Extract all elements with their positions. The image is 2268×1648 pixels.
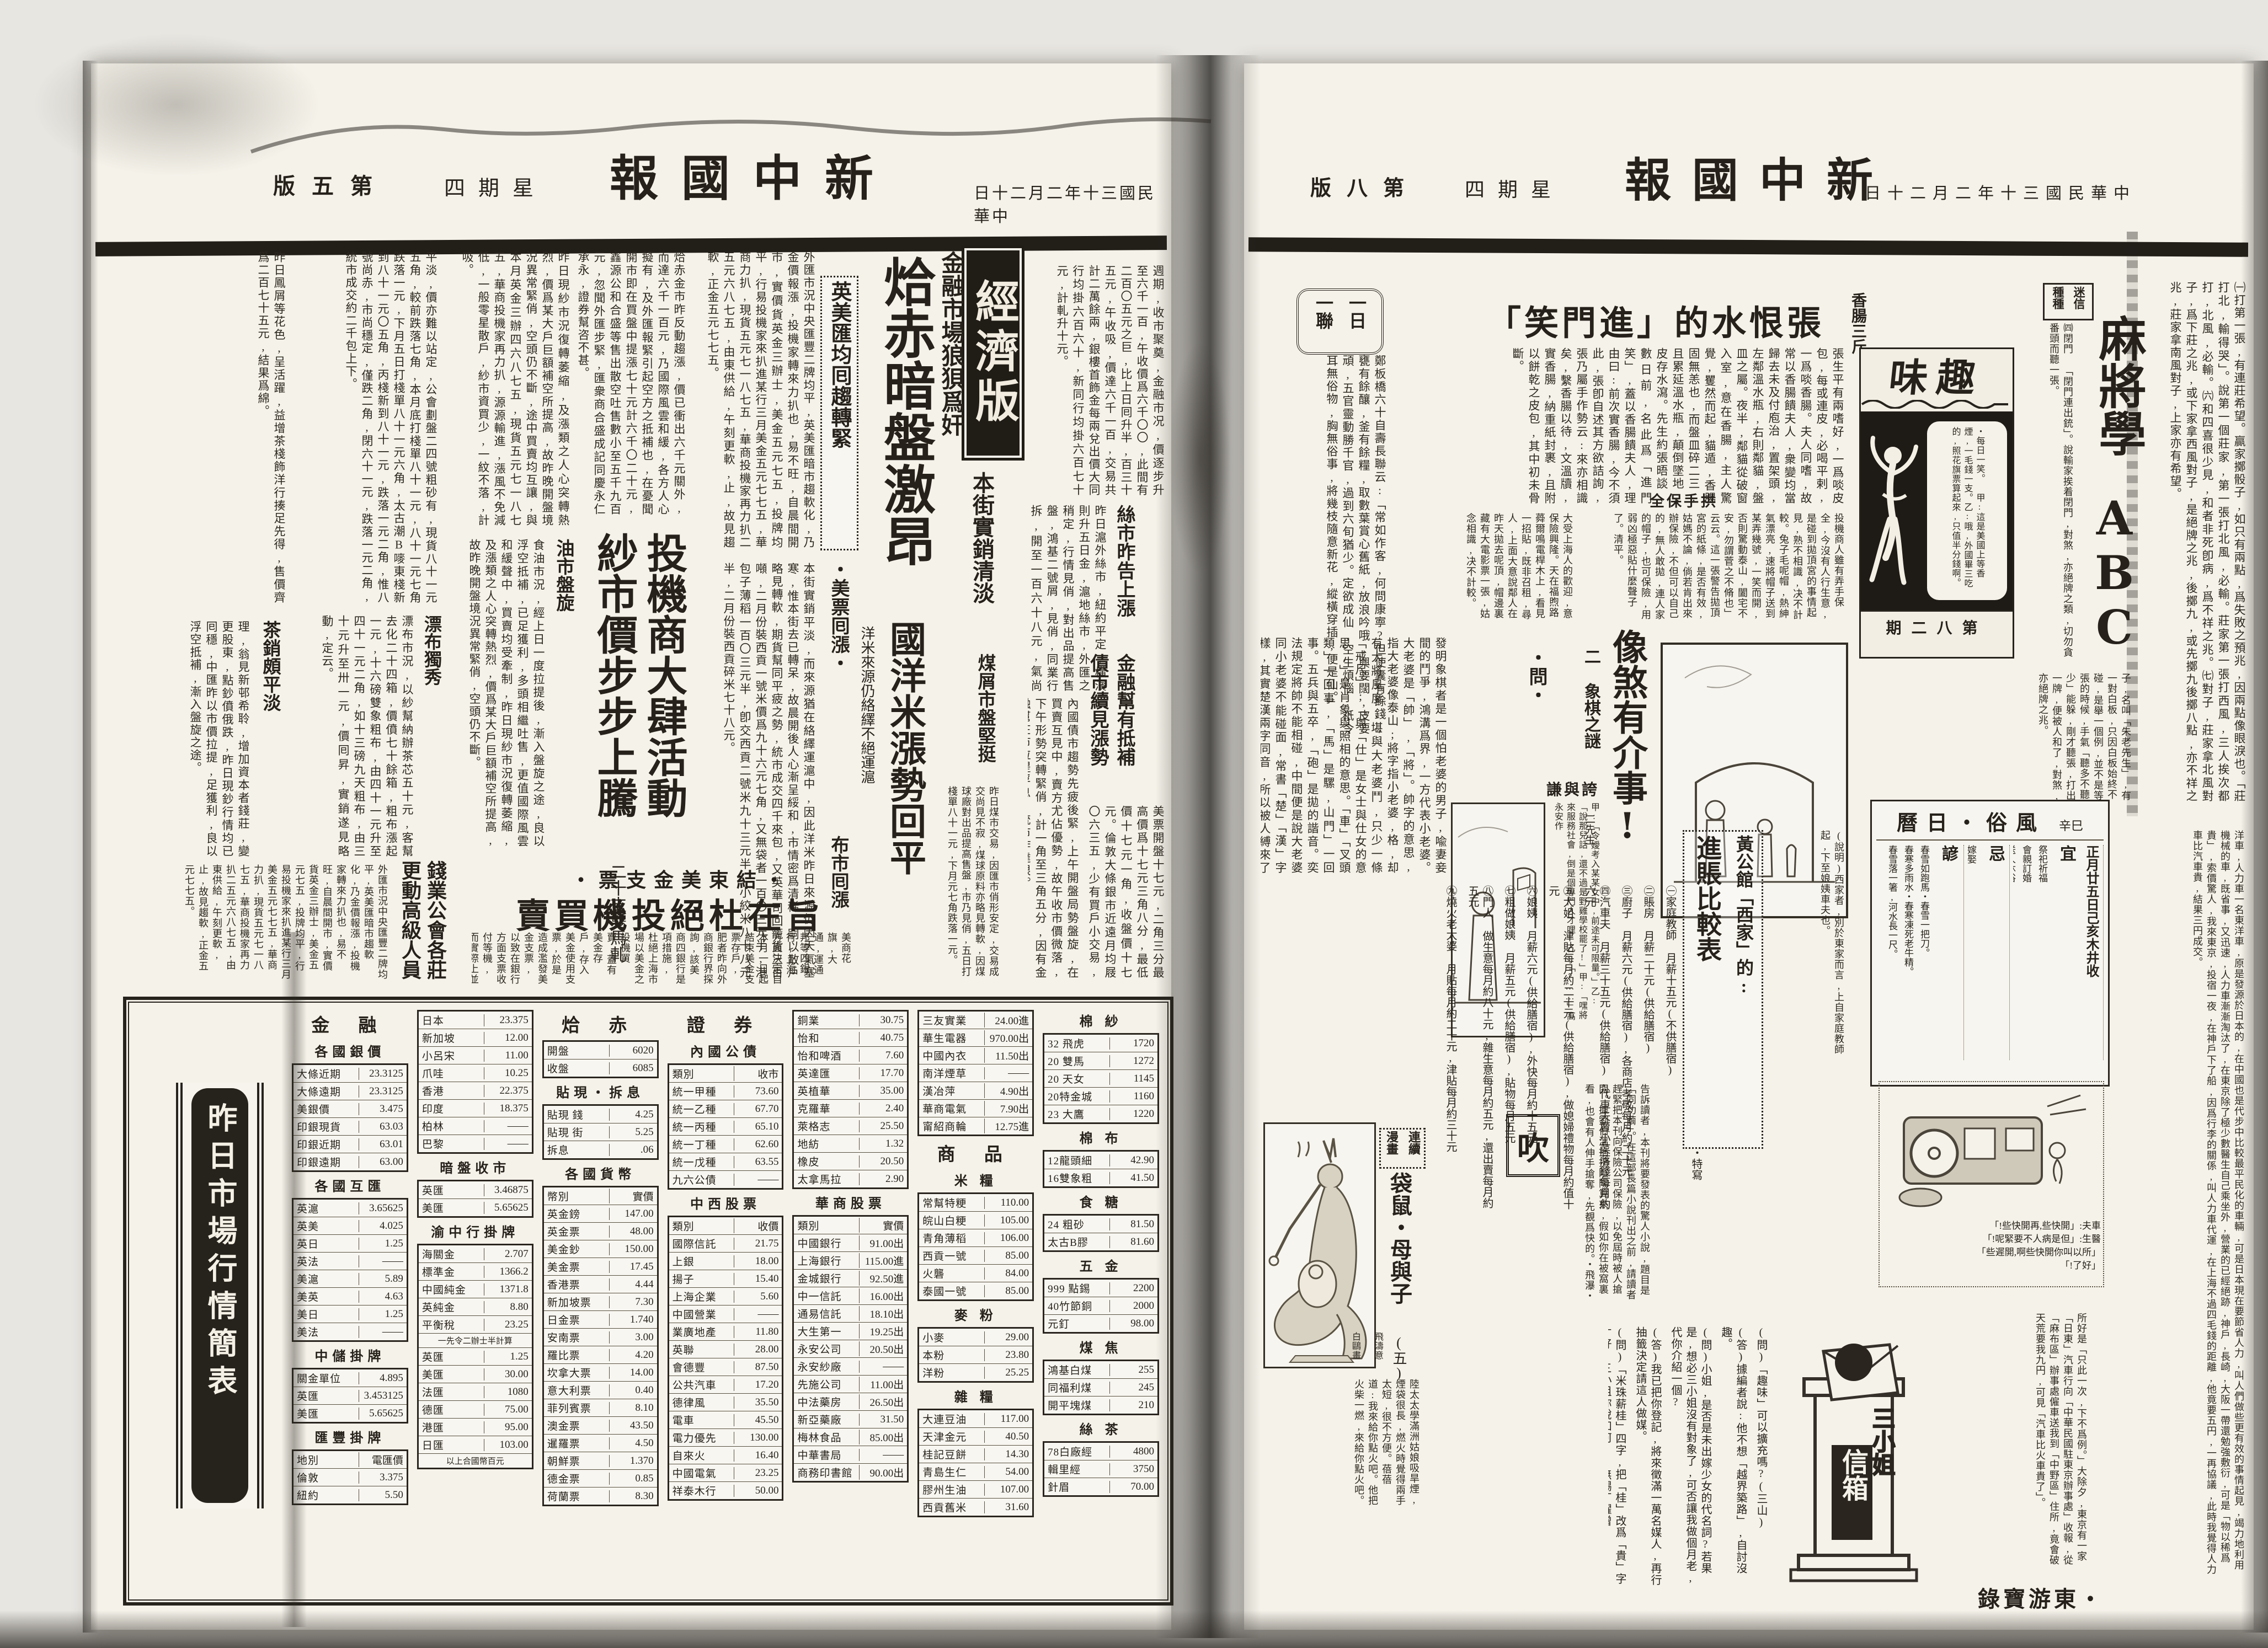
market-row: 澳金票43.50 [544, 1416, 657, 1434]
gold-body: 烚赤金市昨反動趨漲,價已衝出六千元關外,而達六千一百元,乃國際風雲和緩,各方人心… [577, 251, 687, 516]
market-row: 太拿馬拉2.90 [794, 1170, 907, 1187]
market-row: 美金票17.45 [544, 1258, 657, 1275]
market-row-label: 坎拿大票 [547, 1365, 591, 1380]
market-row-value: 3750 [1109, 1463, 1154, 1475]
market-row-value: 2000 [1109, 1300, 1154, 1312]
almanac-yi-item: 祭祀祈福 [2036, 845, 2048, 1060]
market-row-value: 實價 [859, 1218, 904, 1233]
market-row-label: 電車 [673, 1412, 695, 1427]
mahjong-body-left: ㈣閉門 「閉門連出銃」。說輸家挨着閉門,對煞,亦絕牌之類,切勿貪番頭而聽一張。 [2014, 323, 2074, 665]
market-row-value: 11.00 [484, 1050, 529, 1062]
market-row: 以上合國幣百元 [419, 1453, 532, 1468]
market-row-value: 1.25 [484, 1351, 529, 1363]
east-travel-strip: 洋車,人力車一名東洋車,原是發源於日本的,在中國也是代步中比較最平民化的車輛,可… [2102, 830, 2245, 1575]
market-row: 大生第一19.25出 [794, 1322, 907, 1340]
chui-title-box: 吹 [1506, 1114, 1560, 1177]
market-row-value: 45.50 [734, 1414, 778, 1426]
market-row-value: 5.89 [359, 1273, 403, 1285]
market-row: 中國純金1371.8 [419, 1280, 532, 1298]
market-row-label: 元釘 [1048, 1316, 1070, 1331]
ambulance-caption-line: 「!呢緊要不人病是但」:生醫 [1882, 1233, 2101, 1246]
market-row-value: 98.00 [1109, 1318, 1154, 1330]
market-row-value: 115.00進 [859, 1253, 904, 1268]
rice-headline: 國洋米漲勢回平 [879, 620, 932, 929]
market-row-value: 7.60 [859, 1050, 904, 1062]
market-section-header: 商 品 [917, 1139, 1034, 1167]
market-row-value: 92.50進 [859, 1271, 904, 1286]
market-row: 印銀現貨63.03 [293, 1117, 407, 1135]
market-row: 新加坡12.00 [419, 1029, 532, 1046]
market-row: 羅比票4.20 [544, 1346, 657, 1363]
market-row-label: 法匯 [422, 1384, 444, 1399]
market-row-value: 11.50出 [984, 1048, 1029, 1063]
market-section-header: 內國公債 [668, 1040, 784, 1061]
market-row-label: 火礱 [922, 1266, 944, 1281]
right-page: 版八第 四期星 報國中新 日十二月二年十三國民華中 「笑門進」的水恨張 香腸三斤… [1244, 63, 2254, 1630]
market-row: 拆息.06 [544, 1141, 657, 1158]
subhead-oil: 油市盤旋 [550, 539, 577, 649]
market-row-value: 5.25 [609, 1126, 654, 1138]
market-row: 泰國一號85.00 [919, 1282, 1032, 1299]
market-row-value: 5.60 [734, 1291, 778, 1303]
market-row: 英匯1.25 [419, 1347, 532, 1365]
market-row-value: 23.3125 [359, 1068, 403, 1080]
almanac-box: 曆日・俗風 辛巳 正月廿五日己亥木井收 宜 祭祀祈福會親訂婚送人沐浴醒慶開市立易… [1870, 800, 2110, 1087]
market-row: 美滬5.89 [293, 1270, 407, 1287]
market-row: 類別收價 [669, 1217, 782, 1234]
market-row-label: 西貢舊米 [922, 1500, 967, 1515]
market-row: 貼現 錢4.25 [544, 1106, 657, 1123]
market-row-label: 克羅華 [797, 1101, 830, 1116]
market-row-value: 43.50 [609, 1420, 654, 1432]
market-row: 美金鈔150.00 [544, 1240, 657, 1258]
market-row: 統一丁種62.60 [669, 1135, 782, 1153]
market-row-value: 24.00進 [984, 1013, 1029, 1028]
market-row-value: 23.25 [734, 1467, 778, 1479]
market-row: 中國內衣11.50出 [919, 1046, 1032, 1064]
market-row-label: 甯紹商輪 [922, 1119, 967, 1133]
couplet-title-box: 一聯 一日 [1296, 288, 1384, 355]
almanac-proverb-item: 春雪如跑馬・春雪一把刀。 [1918, 845, 1930, 1060]
market-row-value: 91.00出 [859, 1235, 904, 1250]
market-row: 24 粗砂81.50 [1044, 1216, 1157, 1233]
market-section-table: 大連豆油117.00天津金元40.50桂記豆餅14.30青島生仁54.00膠州生… [917, 1409, 1034, 1517]
market-row-value: 15.40 [734, 1273, 778, 1285]
qa-entry: (答)我已把你登記,將來徵滿一萬名媒人,再行抽籤決定請這人做媒。 [1632, 1326, 1662, 1591]
market-row-value: —— [859, 1449, 904, 1461]
market-row: 梅林食品85.00出 [794, 1428, 907, 1446]
market-section-table: 英匯3.46875美匯5.65625 [417, 1180, 533, 1218]
market-row-label: 開平塊煤 [1048, 1398, 1092, 1412]
bank-headline-1: 錢業公會各莊 [421, 860, 450, 982]
market-row-label: 40竹節銅 [1048, 1298, 1092, 1313]
market-section-header: 米 糧 [917, 1169, 1034, 1190]
market-row-value: 21.75 [734, 1238, 778, 1250]
market-row-label: 德匯 [422, 1402, 444, 1417]
market-row: 怡和40.75 [794, 1029, 907, 1046]
market-row-label: 太古B膠 [1048, 1234, 1088, 1249]
market-row-label: 日本 [422, 1013, 444, 1028]
market-row-value: 23.375 [484, 1014, 529, 1026]
market-row-label: 華商電氣 [922, 1101, 967, 1116]
market-row-value: 70.00 [1109, 1481, 1154, 1493]
market-row-value: 1.25 [359, 1238, 403, 1250]
lead-headline: 烚赤暗盤激昂 [868, 255, 943, 608]
market-row-value: 41.50 [1109, 1172, 1154, 1184]
subhead-coal: 煤屑市盤堅挺 [972, 654, 998, 780]
ambulance-caption-line: 「!了好」 [1882, 1259, 2101, 1272]
market-row-value: 6085 [609, 1062, 654, 1074]
market-row: 999 點錫2200 [1044, 1280, 1157, 1297]
market-row: 西貢舊米31.60 [919, 1498, 1032, 1516]
market-row: 業廣地產11.80 [669, 1323, 782, 1340]
market-row: 美法—— [293, 1323, 407, 1340]
market-section-table: 小麥29.00本粉23.80洋粉25.25 [917, 1327, 1034, 1383]
market-row-label: 業廣地產 [673, 1324, 717, 1339]
coal-body: 昨日煤市交易,因匯市俏形安定,交易成交尚見不寂,煤球原料亦略見轉軟,因煤球廠對出… [935, 786, 1000, 979]
market-row-value: 收市 [734, 1066, 778, 1081]
market-row-value: 1272 [1109, 1055, 1154, 1067]
market-row-value: 103.00 [484, 1439, 529, 1451]
market-row-value: 19.25出 [859, 1324, 904, 1339]
market-row: 日本23.375 [419, 1012, 532, 1029]
left-date: 日十二月二年十三國民華中 [974, 180, 1171, 227]
market-row-value: 1720 [1109, 1037, 1154, 1050]
market-row: 中國電氣23.25 [669, 1464, 782, 1481]
market-row: 本粉23.80 [919, 1346, 1032, 1363]
market-row-value: 20.50出 [859, 1341, 904, 1356]
market-row-value: 16.40 [734, 1449, 778, 1462]
subhead-jin1: 金融幫有抵補 [1111, 654, 1138, 791]
market-row: 會德豐87.50 [669, 1358, 782, 1376]
market-row-value: 14.00 [609, 1367, 654, 1379]
market-section-header: 華商股票 [792, 1192, 909, 1212]
market-row-label: 收盤 [547, 1061, 569, 1076]
ambulance-caption-line: 「!些快開再,些快開」:夫車 [1882, 1219, 2101, 1233]
market-row-value: 75.00 [484, 1404, 529, 1416]
market-row: 萊格志25.50 [794, 1117, 907, 1135]
market-row-value: 90.00出 [859, 1465, 904, 1480]
market-row-value: 3.375 [359, 1472, 403, 1484]
market-row-label: 德金票 [547, 1471, 580, 1486]
market-row-value: 28.00 [734, 1344, 778, 1356]
subhead-usnote: ・美票囘漲・ [825, 560, 852, 687]
market-row-label: 爪哇 [422, 1066, 444, 1080]
bottom-scan-shadow [0, 1610, 2268, 1648]
market-section-header: 證 券 [668, 1010, 784, 1037]
market-row-label: 美金鈔 [547, 1242, 580, 1256]
market-row-value: 20.50 [859, 1155, 904, 1168]
market-row: 通易信託18.10出 [794, 1304, 907, 1322]
market-row-value: 收價 [734, 1218, 778, 1233]
market-row: 常幫特粳110.00 [919, 1194, 1032, 1211]
market-row-value: 50.00 [734, 1485, 778, 1497]
subhead-bleach: 漂布獨秀 [419, 615, 445, 714]
market-row-value: 210 [1109, 1399, 1154, 1411]
subhead-silk: 絲市昨告上漲 [1111, 505, 1138, 637]
market-row-value: 63.55 [734, 1156, 778, 1168]
market-row-value: 40.75 [859, 1032, 904, 1044]
market-row-value: 81.60 [1109, 1236, 1154, 1248]
tea-body: 理,翁見新邨希聆,增加資本者錢莊,變更股東,點鈔僨俄跌,昨日現鈔行情均已囘穩,中… [102, 620, 251, 858]
market-row-label: 開盤 [547, 1043, 569, 1058]
market-row-value: —— [859, 1361, 904, 1373]
market-section-table: 關金單位4.895英匯3.453125美匯5.65625 [292, 1368, 408, 1424]
market-row-value: 30.00 [484, 1368, 529, 1381]
market-row-label: 同福利煤 [1048, 1380, 1092, 1395]
market-col-commodities: 三友實業24.00進華生電器970.00出中國內衣11.50出南洋煙草——漢冶萍… [917, 1010, 1034, 1583]
huang-income-item: ㊈燒火老太婆 月貼每月約二十元,津貼每月約三十元 [1443, 885, 1458, 1216]
mahjong-body-right: ㈠打第一張,有連莊希望。贏家擲骰子,如只有兩點,爲失敗之預兆,因兩點像眼淚也。「… [2137, 281, 2247, 802]
top-curl-line [248, 88, 1214, 160]
market-section-header: 棉 布 [1043, 1127, 1159, 1147]
market-row-label: 美匯 [422, 1200, 444, 1215]
market-row: 洋粉25.25 [919, 1363, 1032, 1381]
market-row-value: 4.20 [609, 1349, 654, 1361]
ambulance-illustration [1882, 1084, 2094, 1217]
market-row-value: 255 [1109, 1364, 1154, 1376]
market-row: 朝鮮票1.370 [544, 1452, 657, 1469]
market-row-label: 類別 [673, 1066, 695, 1081]
market-row-value: 110.00 [984, 1197, 1029, 1209]
market-section-table: 海關金2.707標準金1366.2中國純金1371.8英純金8.80平衡稅23.… [417, 1244, 533, 1469]
market-row-label: 會德豐 [673, 1360, 706, 1374]
almanac-ji-group: 忌 嫁娶破券安葬 [1963, 845, 2010, 1060]
market-row-value: 2200 [1109, 1282, 1154, 1294]
market-row-label: 上海銀行 [797, 1253, 841, 1268]
market-row-value: 1145 [1109, 1073, 1154, 1085]
market-row-label: 16雙象粗 [1048, 1170, 1092, 1185]
market-row-label: 中一信託 [797, 1288, 841, 1303]
market-row: 先施公司11.00出 [794, 1375, 907, 1393]
almanac-yan-group: 諺 春雪如跑馬・春雪一把刀。春寒多雨水・春寒凍死老牛精。春雪落一箸,河水長一尺。 [1877, 845, 1960, 1060]
market-row: 美匯5.65625 [293, 1404, 407, 1422]
market-row: 三友實業24.00進 [919, 1012, 1032, 1029]
market-row-label: 23 大鷹 [1048, 1106, 1085, 1121]
lead-subheadline: 英美匯均囘趨轉緊 [820, 276, 858, 550]
market-row-label: 柏林 [422, 1119, 444, 1133]
market-section-header: 中西股票 [668, 1192, 784, 1213]
subhead-tea: 茶銷頗平淡 [257, 620, 283, 731]
right-header-rule [1248, 237, 2248, 256]
market-row-label: 鴻基白煤 [1048, 1362, 1092, 1377]
subhead-jin2: 債市續見漲勢 [1084, 654, 1111, 791]
quwei-slogan: ・每日一笑。 [1975, 427, 1984, 483]
almanac-yi-item: 送人沐浴 [2013, 845, 2016, 1060]
market-section-table: 類別收市統一甲種73.60統一乙種67.70統一丙種65.10統一丁種62.60… [668, 1063, 784, 1190]
right-masthead: 報國中新 [1625, 143, 1894, 210]
market-row-label: 日匯 [422, 1437, 444, 1452]
huang-income-item: ㊇門人 做生意每月約八十元,雜生意每月約五元,還出賣每月約五元 [1465, 885, 1494, 1216]
market-row: 同福利煤245 [1044, 1378, 1157, 1396]
market-col-cotton: 棉 紗32 飛虎172020 雙馬127220 天女114520特金城11602… [1043, 1010, 1159, 1583]
market-row-label: 小呂宋 [422, 1048, 455, 1063]
market-row: 香港22.375 [419, 1082, 532, 1099]
zhang-headline: 「笑門進」的水恨張 [1487, 295, 1845, 345]
market-row: 新加坡票7.30 [544, 1293, 657, 1310]
market-row-value: 26.50出 [859, 1394, 904, 1409]
bank-headline-2: 更動高級人員 [396, 860, 424, 982]
market-row-value: —— [484, 1120, 529, 1132]
market-row: 皖山白粳105.00 [919, 1211, 1032, 1229]
market-row-label: 漢冶萍 [922, 1083, 956, 1098]
market-row: 統一丙種65.10 [669, 1117, 782, 1135]
market-row: 西貢一號85.00 [919, 1246, 1032, 1264]
market-row: 上銀18.00 [669, 1252, 782, 1270]
market-row-label: 銅業 [797, 1013, 819, 1028]
market-row-label: 統一甲種 [673, 1084, 717, 1099]
market-row-value: 67.70 [734, 1103, 778, 1115]
right-page-number: 版八第 [1310, 171, 1419, 201]
market-row-value: 4.895 [359, 1372, 403, 1384]
market-row-label: 金城銀行 [797, 1271, 841, 1286]
market-row-label: 西貢一號 [922, 1248, 967, 1263]
quwei-logo-row: 味趣 [1861, 349, 2013, 400]
market-row-value: 970.00出 [984, 1030, 1029, 1045]
market-row-value: 48.00 [609, 1226, 654, 1238]
market-row-value: 1160 [1109, 1090, 1154, 1103]
market-row-value: 18.375 [484, 1103, 529, 1115]
market-row: 大條近期23.3125 [293, 1065, 407, 1082]
qa-entry: (答)據編者說:他不想「越界築路」,自討沒趣。 [1718, 1326, 1748, 1591]
boast-title: 謙與誇 [1546, 778, 1613, 800]
market-row-label: 怡和啤酒 [797, 1048, 841, 1063]
market-row-label: 新加坡票 [547, 1294, 591, 1309]
qa-column: (問)「趣味」可以擴充嗎?(三山)(答)據編者說:他不想「越界築路」,自討沒趣。… [1608, 1326, 1768, 1591]
market-row-label: 暹羅票 [547, 1436, 580, 1451]
market-row: 意大利票0.40 [544, 1381, 657, 1399]
market-row: 日金票1.740 [544, 1310, 657, 1328]
market-row-label: 貼現 街 [547, 1125, 584, 1139]
market-table-region: 昨日市場行情簡表 金 融各國銀價大條近期23.3125大條遠期23.3125美銀… [123, 997, 1173, 1606]
market-row-value: 1.25 [359, 1308, 403, 1320]
market-row: 平衡稅23.25 [419, 1315, 532, 1333]
market-row-value: 4.25 [609, 1109, 654, 1121]
market-row: 78白廠經4800 [1044, 1443, 1157, 1460]
market-row: 中一信託16.00出 [794, 1287, 907, 1304]
market-row-value: 25.25 [984, 1367, 1029, 1379]
cheque-body: 美商花旗,大通,運通邦等四銀行,上海方面決定自本月一日起結束美金支票存戶,肥者昨… [472, 932, 852, 984]
market-row-label: 類別 [673, 1218, 695, 1233]
market-section-header: 中儲掛牌 [292, 1345, 408, 1365]
market-row-label: 永安公司 [797, 1341, 841, 1356]
market-row: 自來火16.40 [669, 1446, 782, 1464]
market-section-header: 五 金 [1043, 1255, 1159, 1275]
market-row: 荷蘭票8.30 [544, 1487, 657, 1505]
market-row-label: 南洋煙草 [922, 1066, 967, 1080]
market-note: 一先令二辦士半計算 [422, 1335, 529, 1346]
market-row-value: 30.75 [859, 1014, 904, 1026]
market-row-value: 實價 [609, 1189, 654, 1203]
market-row-value: —— [984, 1067, 1029, 1079]
market-row: 統一乙種67.70 [669, 1100, 782, 1117]
market-row-label: 青島生仁 [922, 1464, 967, 1479]
market-row-label: 香港票 [547, 1277, 580, 1292]
market-row-value: 22.375 [484, 1085, 529, 1097]
market-row-value: 3.453125 [359, 1390, 403, 1402]
market-row: 英金票48.00 [544, 1222, 657, 1240]
market-row-value: —— [734, 1174, 778, 1186]
bond-body2: 美票開盤十七元,二角三分最高價爲十七元三角八分,最低價十七元一角,收盤價十七元。… [1084, 805, 1166, 979]
market-row-label: 中國銀行 [797, 1235, 841, 1250]
market-row-value: 8.10 [609, 1402, 654, 1414]
market-row: 菲列賓票8.10 [544, 1399, 657, 1416]
market-row-label: 巴黎 [422, 1136, 444, 1151]
market-row-value: 3.65625 [359, 1202, 403, 1214]
xiangqi-headline: 像煞有介事! [1602, 629, 1652, 866]
market-row-label: 英純金 [422, 1299, 455, 1314]
market-row-label: 通易信託 [797, 1306, 841, 1321]
market-col-finance: 金 融各國銀價大條近期23.3125大條遠期23.3125美銀價3.475印銀現… [292, 1010, 408, 1583]
ambulance-cartoon-box: 「!些快開再,些快開」:夫車「!呢緊要不人病是但」:生醫「些遲開,啊些快開你叫以… [1879, 1081, 2104, 1287]
couplet-title-left: 一聯 [1311, 294, 1336, 349]
market-row-value: —— [359, 1326, 403, 1338]
almanac-date-col: 正月廿五日己亥木井收 [2082, 845, 2104, 1060]
market-banner-frame: 昨日市場行情簡表 [176, 1083, 264, 1508]
gutter-ink-blotch [1170, 342, 1230, 574]
quwei-joke-text: ・每日一笑。 甲:這是美國上等香煙,一毛錢一支。乙:哦,外國畢三吃的,照花旗票算… [1949, 427, 1986, 592]
market-row: 橡皮20.50 [794, 1152, 907, 1170]
bleach-body: 漂布市況,以紗幫納辦茶芯五十元,客幫去化二十四箱,價僨七十餘箱,粗布漲起一元,十… [292, 615, 415, 858]
market-col-shares: 銅業30.75怡和40.75怡和啤酒7.60英達匯17.70英植華35.00克羅… [792, 1010, 909, 1583]
market-row: 香港票4.44 [544, 1275, 657, 1293]
market-row: 爪哇10.25 [419, 1064, 532, 1082]
market-row-value: 85.00 [984, 1250, 1029, 1262]
top-left-smudge [33, 33, 320, 176]
market-row-label: 三友實業 [922, 1013, 967, 1028]
market-row: 安南票3.00 [544, 1328, 657, 1346]
market-row: 印銀近期63.01 [293, 1135, 407, 1153]
market-row: 英植華35.00 [794, 1082, 907, 1099]
market-row-label: 朝鮮票 [547, 1453, 580, 1468]
market-row-value: 87.50 [734, 1361, 778, 1373]
qa-entry: (問)小姐,是否是未出嫁少女的代名詞?若果是,想必三小姐沒有對象了,可否讓我做個… [1668, 1326, 1712, 1591]
market-row-label: 祥泰木行 [673, 1483, 717, 1498]
market-row-label: 統一乙種 [673, 1101, 717, 1116]
market-row-label: 洋粉 [922, 1365, 944, 1380]
market-row: 永安公司20.50出 [794, 1340, 907, 1357]
market-row-value: 1.370 [609, 1455, 654, 1467]
market-row-value: 42.90 [1109, 1154, 1154, 1167]
market-row-label: 永安紗廠 [797, 1359, 841, 1374]
market-row-label: 中國營業 [673, 1307, 717, 1321]
market-row-value: 4.50 [609, 1437, 654, 1449]
market-row-value: 3.00 [609, 1331, 654, 1344]
market-row-label: 美匯 [422, 1367, 444, 1382]
market-row-label: 標準金 [422, 1264, 455, 1279]
market-section-table: 32 飛虎172020 雙馬127220 天女114520特金城116023 大… [1043, 1033, 1159, 1124]
market-row-label: 新亞藥廠 [797, 1412, 841, 1427]
market-row: 公共汽車17.20 [669, 1376, 782, 1393]
mahjong-body-bottom: 子,名叫「朱老先生」,有一對白板,只因白板始終不碰,是舉一個例,並不是等張的時候… [2014, 673, 2132, 802]
market-row: 桂記豆餅14.30 [919, 1445, 1032, 1463]
market-row-value: 12.75進 [984, 1119, 1029, 1133]
market-row-label: 新加坡 [422, 1030, 455, 1045]
market-row-label: 24 粗砂 [1048, 1217, 1085, 1232]
quwei-joke-card: ・每日一笑。 甲:這是美國上等香煙,一毛錢一支。乙:哦,外國畢三吃的,照花旗票算… [1927, 421, 2007, 600]
market-section-header: 絲 茶 [1043, 1418, 1159, 1438]
market-row-value: 106.00 [984, 1232, 1029, 1244]
right-edge-shadow [2241, 61, 2268, 1633]
market-row: 關金單位4.895 [293, 1369, 407, 1387]
market-row-value: 17.20 [734, 1379, 778, 1391]
market-row-value: —— [359, 1255, 403, 1267]
market-row-value: —— [484, 1138, 529, 1150]
market-row: 英匯3.453125 [293, 1387, 407, 1404]
chui-body: 告訴讀者,本刊將要發表的驚人小說,題目是「同功繭」。在這部長篇小說刊出之前,請讀… [1557, 1084, 1651, 1304]
market-row-value: 31.60 [984, 1501, 1029, 1513]
market-row-label: 英金鎊 [547, 1206, 580, 1221]
